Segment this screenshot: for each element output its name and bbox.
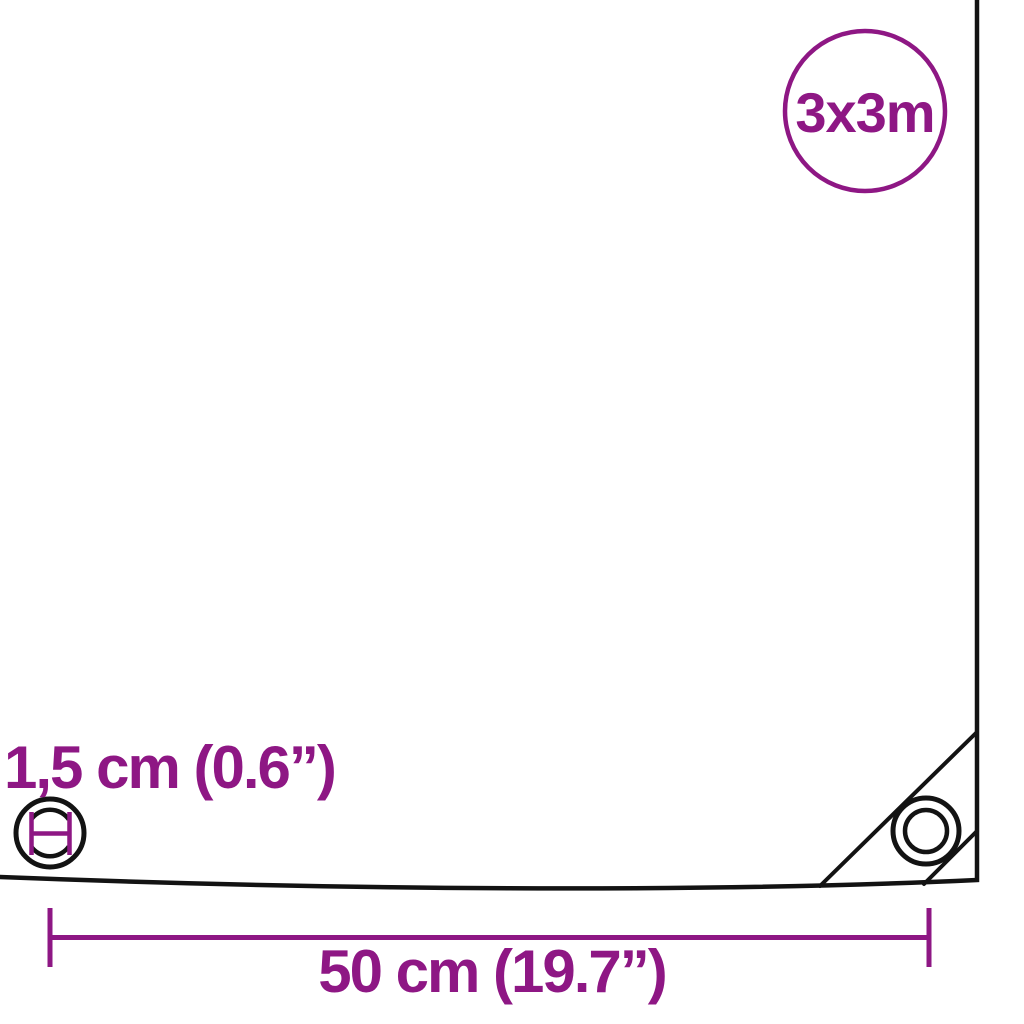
size-badge-label: 3x3m: [795, 81, 934, 144]
grommet-spacing-label: 50 cm (19.7”): [318, 938, 666, 1005]
product-dimension-diagram: 1,5 cm (0.6”) 50 cm (19.7”) 3x3m: [0, 0, 1024, 1024]
grommet-diameter-label: 1,5 cm (0.6”): [4, 734, 335, 801]
tarpaulin-diagram-canvas: 1,5 cm (0.6”) 50 cm (19.7”) 3x3m: [0, 0, 1024, 1024]
grommet-diameter-icon: [16, 799, 84, 867]
size-badge: 3x3m: [785, 31, 945, 191]
corner-grommet-icon: [893, 798, 959, 864]
